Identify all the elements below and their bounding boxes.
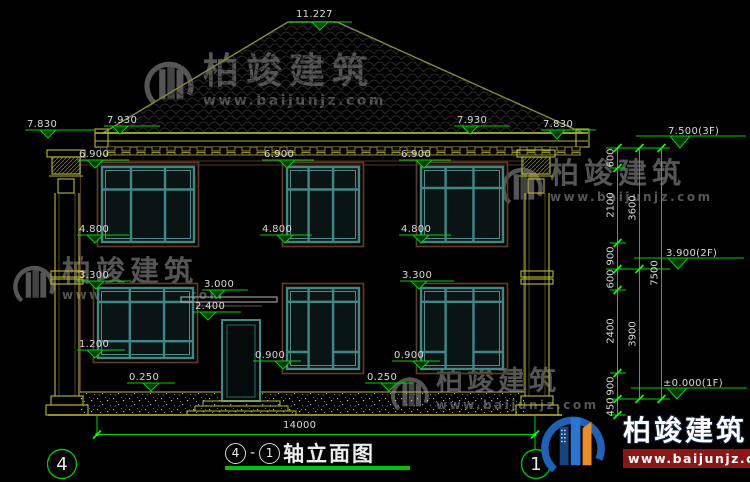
level-label-win2-head-3: 6.900 — [401, 149, 431, 160]
watermark-roof: 柏竣建筑 www.baijunjz.com — [143, 53, 386, 111]
baijun-logo-icon — [527, 406, 619, 480]
axis-bubble-4: 4 — [48, 450, 77, 479]
level-label-win2-head-1: 6.900 — [79, 149, 109, 160]
baijun-logo-icon — [143, 53, 195, 111]
level-label-floor2: 3.900(2F) — [666, 248, 717, 259]
title-separator: - — [250, 445, 255, 461]
dimension-linework — [25, 22, 747, 450]
level-label-win2-sill-2: 4.800 — [262, 224, 292, 235]
watermark-brand: 柏竣建筑 — [203, 53, 386, 91]
chain-dim-2100: 2100 — [606, 192, 617, 217]
level-label-sill-left: 1.200 — [79, 339, 109, 350]
chain-dim-7500: 7500 — [650, 260, 661, 285]
level-label-eave-top-left: 7.930 — [107, 115, 137, 126]
level-label-win1-head-1: 3.300 — [79, 270, 109, 281]
chain-dim-3900: 3900 — [628, 321, 639, 346]
level-label-canopy: 3.000 — [204, 279, 234, 290]
watermark-left: 柏竣建筑 www.baijunjz.com — [12, 256, 225, 310]
level-label-win2-sill-3: 4.800 — [401, 224, 431, 235]
elevation-drawing-canvas: 柏竣建筑 www.baijunjz.com 柏竣建筑 www.baijunjz.… — [0, 0, 750, 482]
brand-logo: 柏竣建筑 www.baijunjz.com — [527, 406, 750, 480]
chain-dim-2400: 2400 — [606, 318, 617, 343]
watermark-brand: 柏竣建筑 — [550, 158, 713, 188]
level-label-floor1: ±0.000(1F) — [663, 378, 723, 389]
chain-dim-600b: 600 — [606, 269, 617, 288]
title-underline — [225, 466, 410, 470]
title-axis-end: 1 — [259, 443, 280, 464]
level-label-door-head: 2.400 — [195, 301, 225, 312]
level-label-sill-mid: 0.900 — [255, 350, 285, 361]
watermark-url: www.baijunjz.com — [203, 93, 386, 109]
level-label-eave-edge-right: 7.830 — [543, 119, 573, 130]
entrance-steps — [187, 401, 296, 415]
level-label-win2-head-2: 6.900 — [264, 149, 294, 160]
chain-dim-600a: 600 — [606, 148, 617, 167]
title-text: 轴立面图 — [283, 438, 375, 468]
title-axis-start: 4 — [225, 443, 246, 464]
baijun-logo-icon — [500, 158, 544, 212]
overall-width-dim: 14000 — [283, 420, 316, 431]
chain-dim-900a: 900 — [606, 246, 617, 265]
brand-logo-url: www.baijunjz.com — [623, 449, 750, 468]
level-label-plinth-2: 0.250 — [367, 372, 397, 383]
level-label-eave-top-right: 7.930 — [457, 115, 487, 126]
level-label-win2-sill-1: 4.800 — [79, 224, 109, 235]
level-label-win1-head-2: 3.300 — [402, 270, 432, 281]
level-label-eave-edge-left: 7.830 — [27, 119, 57, 130]
chain-dim-900b: 900 — [606, 376, 617, 395]
level-label-sill-right: 0.900 — [394, 350, 424, 361]
brand-logo-text: 柏竣建筑 — [623, 416, 750, 447]
chain-dim-3600: 3600 — [628, 195, 639, 220]
level-label-ridge: 11.227 — [296, 9, 333, 20]
baijun-logo-icon — [12, 256, 56, 310]
drawing-title: 4 - 1 轴立面图 — [225, 438, 375, 468]
level-label-floor3: 7.500(3F) — [668, 126, 719, 137]
watermark-brand: 柏竣建筑 — [436, 368, 599, 396]
level-label-plinth-1: 0.250 — [129, 372, 159, 383]
